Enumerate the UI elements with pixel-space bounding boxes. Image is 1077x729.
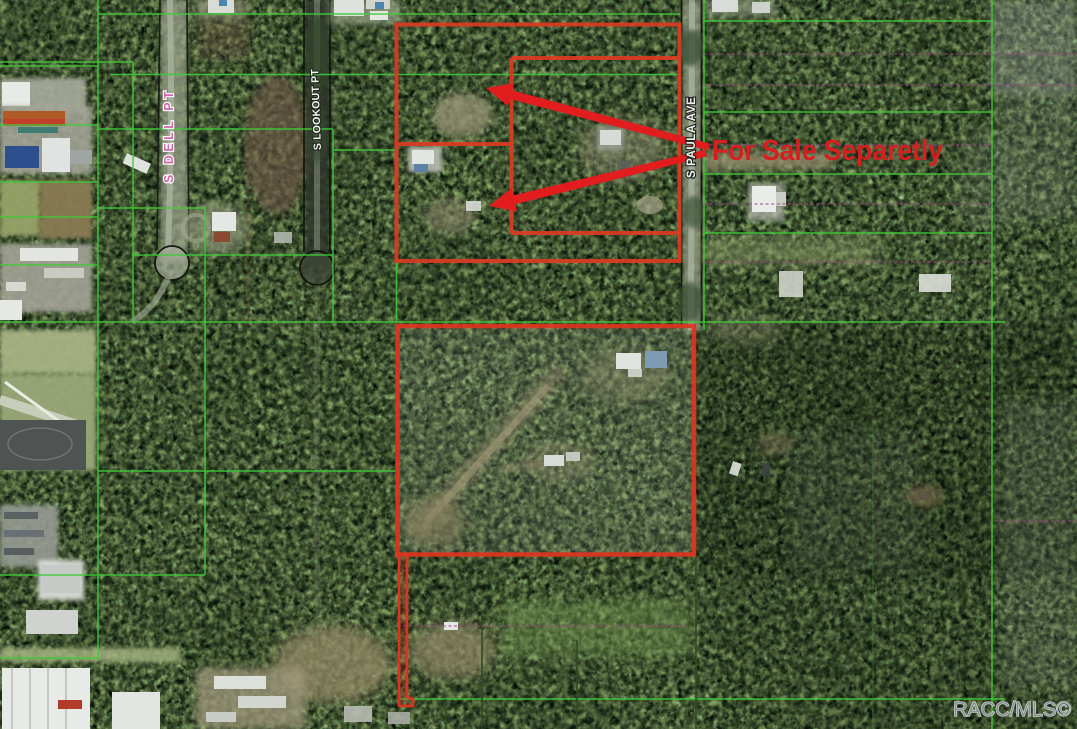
svg-text:S PAULA AVE: S PAULA AVE	[686, 97, 698, 178]
svg-text:RACC/MLS©: RACC/MLS©	[953, 699, 1071, 721]
svg-text:S DELL PT: S DELL PT	[162, 88, 176, 183]
svg-text:For Sale Separetly: For Sale Separetly	[712, 135, 943, 167]
